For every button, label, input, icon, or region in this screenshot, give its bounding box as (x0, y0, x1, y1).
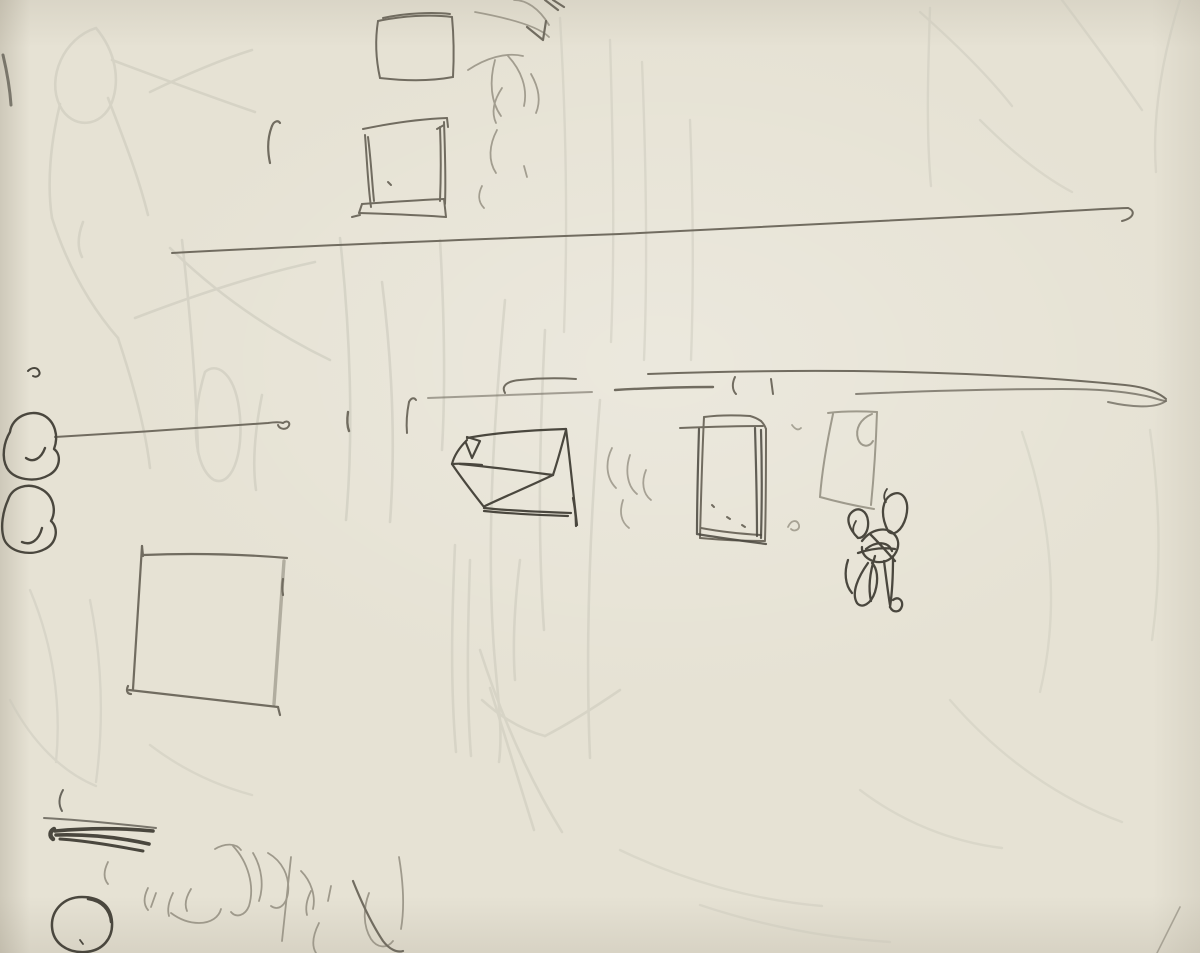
pencil-sketch-drawing (0, 0, 1200, 953)
large-square (127, 546, 287, 715)
ghost-figure-top-left (50, 28, 393, 522)
top-square (376, 13, 453, 80)
bottom-curve-scribbles (105, 845, 404, 953)
corner-overlap-sheet (1157, 907, 1200, 953)
hatch-marks (44, 790, 156, 851)
wall-lines-mid (347, 371, 1166, 433)
window-frame (352, 118, 448, 217)
page-edge-mark (3, 55, 11, 105)
ghost-right-middle (950, 430, 1159, 822)
door-rectangle (680, 415, 766, 541)
figure-scribble (846, 489, 907, 611)
ghost-bottom-right (620, 790, 1002, 942)
bottom-curve-dark-hook (353, 881, 403, 952)
bottom-circle (52, 897, 112, 952)
ghost-top-right (920, 0, 1180, 192)
ghost-bottom-left (10, 590, 252, 795)
small-curls-mid (607, 425, 801, 530)
horizon-line-top (172, 208, 1133, 253)
left-horizontal-line (55, 422, 289, 437)
perspective-box (452, 429, 577, 526)
blob-circle-lower (2, 486, 56, 553)
blob-circle-upper (4, 368, 59, 479)
leaf-scribbles (468, 0, 549, 208)
sketchbook-page (0, 0, 1200, 953)
curtain-rectangle (820, 411, 877, 509)
small-hook-stroke (268, 121, 280, 163)
corner-overlap-edge (1157, 907, 1180, 953)
door-rectangle-inner (697, 428, 766, 544)
ghost-top-verticals (560, 18, 693, 360)
corner-overlap-fill (1157, 907, 1200, 953)
ghost-figure-center (440, 240, 620, 832)
